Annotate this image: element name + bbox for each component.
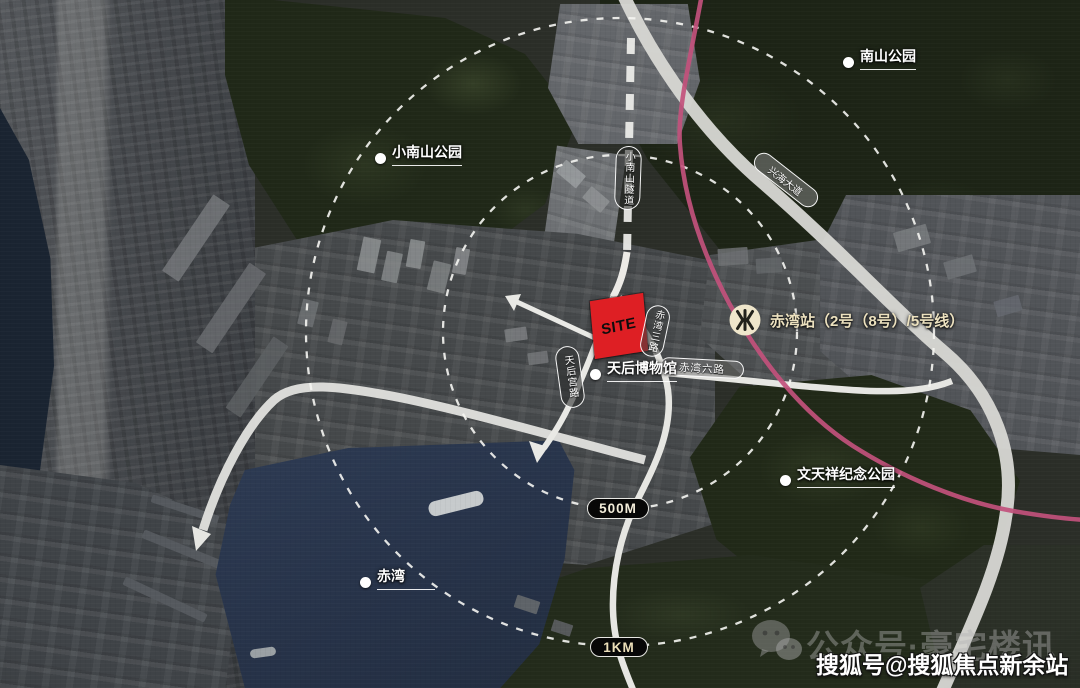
- ring-label-1km: 1KM: [590, 637, 648, 657]
- poi-dot: [843, 57, 854, 68]
- road-label-text: 赤湾六路: [679, 359, 726, 376]
- northwest-arrow-line: [517, 302, 597, 339]
- poi-dot: [375, 153, 386, 164]
- road-label-text: 赤湾三路: [643, 308, 667, 354]
- road-label-text: 小南山隧道: [620, 150, 637, 205]
- chiwan-3rd-road-line: [613, 297, 669, 688]
- chiwan-metro-station: 赤湾站（2号（8号）/5号线）: [729, 304, 964, 336]
- main-road-connector: [613, 252, 627, 297]
- road-label-xiaonanshan-tunnel: 小南山隧道: [614, 146, 642, 211]
- poi-nanshan-park: 南山公园: [843, 46, 916, 70]
- metro-line: [680, 0, 1080, 520]
- poi-label: 南山公园: [860, 46, 916, 70]
- ring-label-text: 500M: [599, 501, 637, 516]
- map-overlay-graphics: [0, 0, 1080, 688]
- poi-label: 赤湾: [377, 566, 435, 590]
- poi-dot: [780, 475, 791, 486]
- ring-label-500m: 500M: [587, 498, 649, 519]
- poi-label: 文天祥纪念公园: [797, 464, 895, 488]
- poi-label: 小南山公园: [392, 142, 462, 166]
- poi-tianhou-museum: 天后博物馆: [590, 358, 677, 382]
- poi-label: 天后博物馆: [607, 358, 677, 382]
- site-label: SITE: [600, 314, 637, 338]
- poi-dot: [360, 577, 371, 588]
- poi-dot: [590, 369, 601, 380]
- poi-wentianxiang-memorial-park: 文天祥纪念公园: [780, 464, 895, 488]
- chiwan-site-location-map: SITE 小南山隧道 兴海大道 天后宫路 赤湾三路 赤湾六路 500M 1KM …: [0, 0, 1080, 688]
- poi-chiwan: 赤湾: [360, 566, 435, 590]
- site-marker: SITE: [590, 293, 648, 359]
- shenzhen-metro-icon: [729, 304, 761, 336]
- ring-label-text: 1KM: [603, 640, 635, 655]
- poi-xiaonanshan-park: 小南山公园: [375, 142, 462, 166]
- direction-arrow: [192, 526, 211, 551]
- west-sweep-road: [203, 387, 645, 530]
- road-label-text: 天后宫路: [560, 354, 581, 400]
- station-label: 赤湾站（2号（8号）/5号线）: [770, 310, 964, 331]
